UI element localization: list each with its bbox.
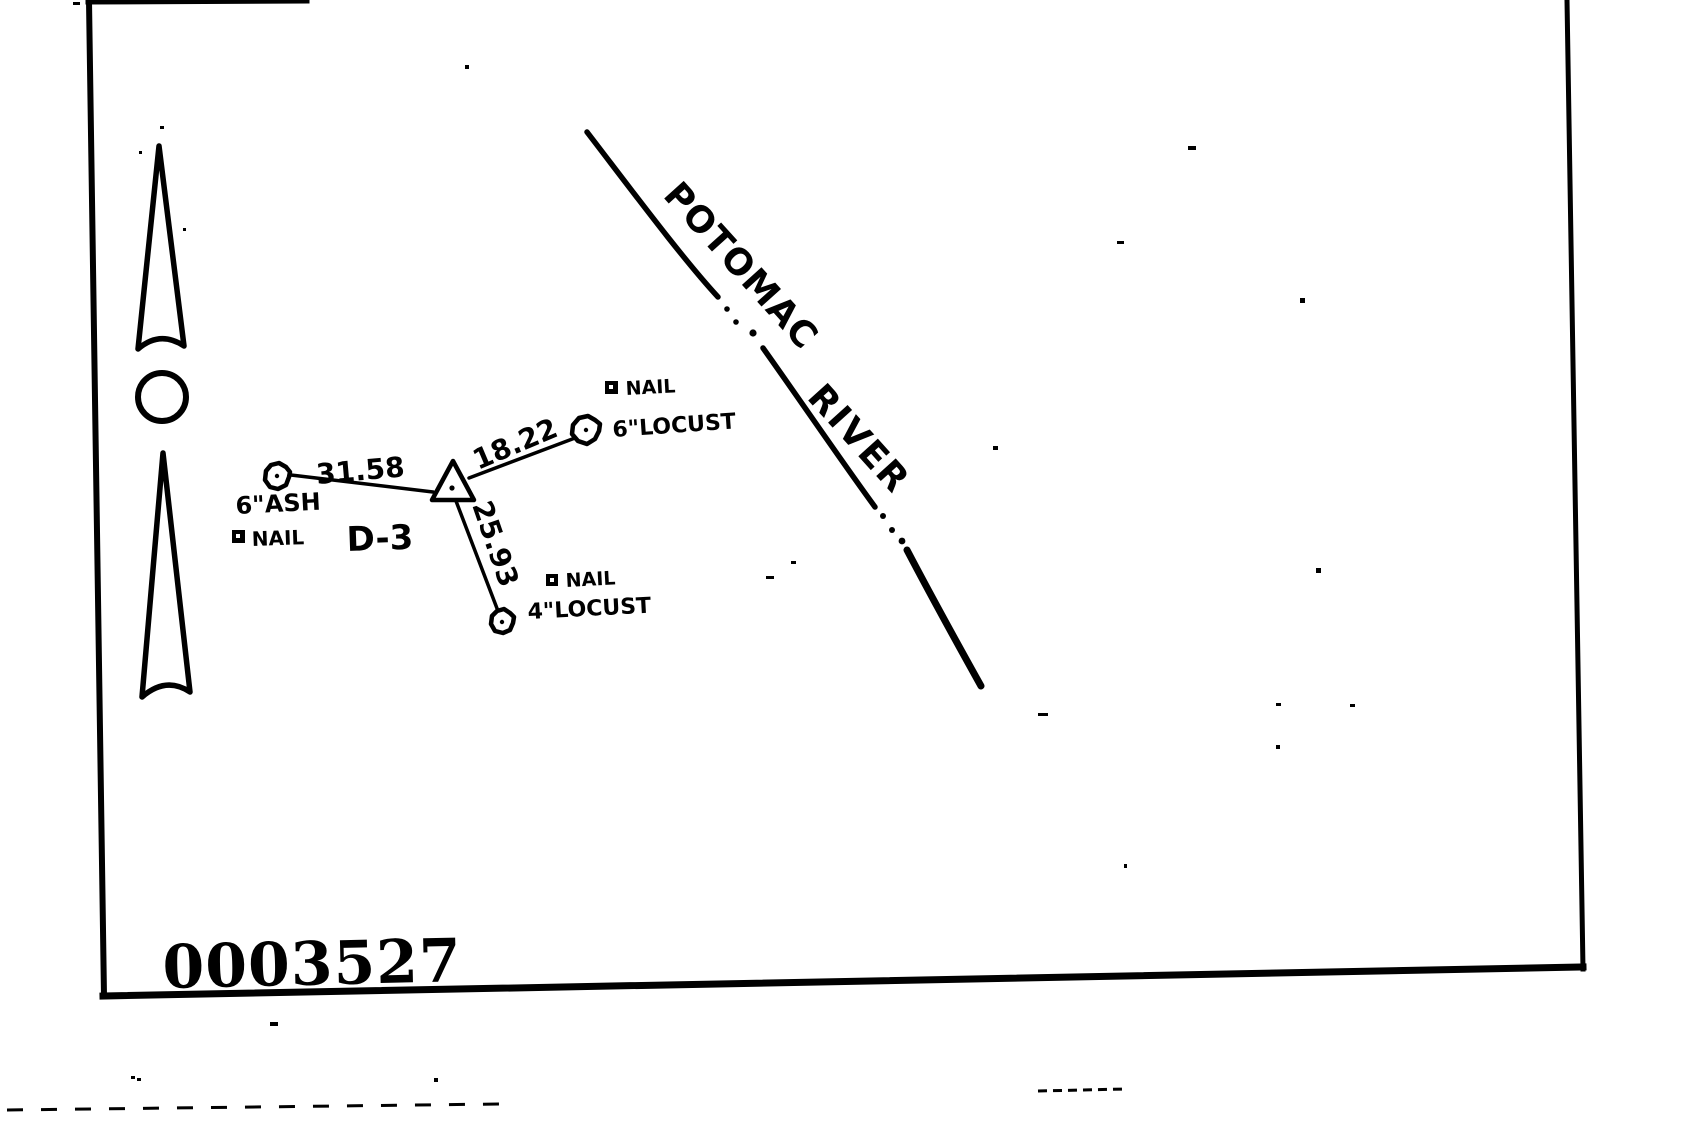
scanned-survey-card: POTOMAC RIVER: [0, 0, 1696, 1122]
station-id-label: D-3: [346, 518, 414, 560]
scan-dashed-artifact-right: [1038, 1089, 1126, 1091]
scan-dashed-artifact-left: [7, 1104, 500, 1110]
nail-square-hole: [236, 534, 240, 538]
card-border-right: [1567, 0, 1583, 969]
north-arrow-icon: [138, 146, 190, 697]
nail-label-locust6: NAIL: [605, 375, 676, 400]
distance-label-ash: 31.58: [315, 450, 406, 491]
card-border-left: [89, 1, 104, 996]
tree-label-locust6: 6"LOCUST: [612, 409, 737, 443]
north-arrow-circle: [138, 373, 186, 421]
nail-square-hole: [550, 578, 554, 582]
nail-text: NAIL: [625, 375, 676, 400]
card-border-top: [88, 1, 307, 2]
river-dots-2: [880, 513, 905, 544]
station-triangle-icon: [432, 461, 474, 500]
river-name-word1: POTOMAC: [655, 175, 825, 358]
station-center-dot: [449, 485, 454, 490]
tree-center-dot: [584, 428, 588, 432]
river-segment-3: [907, 550, 981, 686]
stamp-number: 0003527: [162, 926, 463, 1003]
survey-sketch-svg: POTOMAC RIVER: [0, 0, 1696, 1122]
nail-text: NAIL: [251, 525, 304, 551]
tree-blob-icon-locust4: [491, 609, 514, 633]
distance-label-locust4: 25.93: [465, 497, 525, 591]
station-diagram: D-3 31.58 18.22 25.93 6"ASH NAIL NAIL 6"…: [232, 375, 737, 633]
nail-text: NAIL: [565, 567, 616, 592]
nail-label-locust4: NAIL: [546, 567, 616, 592]
tree-blob-icon-locust6: [572, 416, 600, 444]
river-dots-1: [724, 306, 756, 336]
tree-blob-icon-ash: [265, 463, 290, 489]
tree-center-dot: [275, 474, 279, 478]
station-triangle-outline: [432, 461, 474, 500]
north-arrow-lower-needle: [142, 453, 190, 697]
nail-square-hole: [609, 385, 613, 389]
north-arrow-upper-needle: [138, 146, 184, 349]
tree-label-ash: 6"ASH: [235, 488, 322, 520]
tree-center-dot: [500, 620, 504, 624]
distance-label-locust6: 18.22: [468, 411, 562, 476]
tree-label-locust4: 4"LOCUST: [527, 594, 652, 625]
nail-label-ash: NAIL: [232, 525, 305, 551]
